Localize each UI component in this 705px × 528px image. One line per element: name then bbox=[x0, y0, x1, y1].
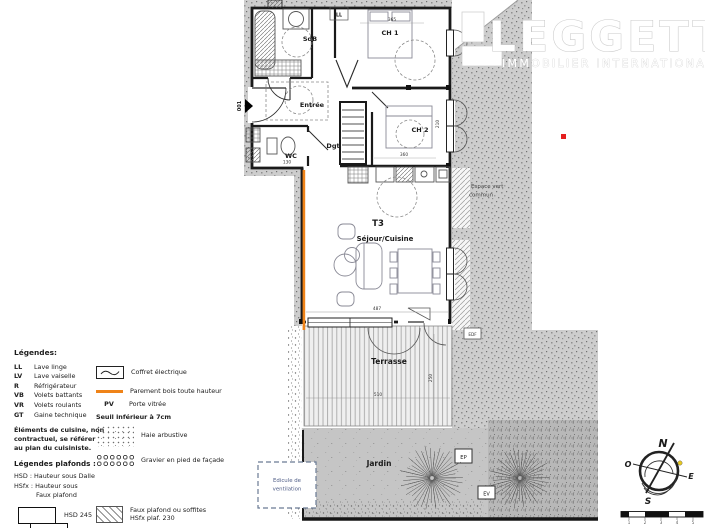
compass-e: E bbox=[688, 472, 694, 481]
bathroom-sink bbox=[283, 9, 309, 29]
label-t3: T3 bbox=[372, 219, 384, 229]
legend: Légendes: LLLave linge LVLave vaiselle R… bbox=[12, 348, 264, 524]
legend-pv: PV Porte vitrée bbox=[96, 400, 166, 410]
svg-text:Edicule de: Edicule de bbox=[273, 478, 302, 484]
espace-vert-line1: Espace vert bbox=[471, 184, 504, 190]
svg-text:4: 4 bbox=[676, 520, 679, 525]
dim-ch1: 365 bbox=[388, 17, 396, 23]
legend-coffret: Coffret électrique bbox=[96, 366, 187, 379]
compass: N O E S bbox=[625, 437, 695, 507]
gravier-symbol bbox=[96, 454, 134, 467]
logo-wordmark: LEGGETT bbox=[489, 12, 705, 61]
compass-n: N bbox=[658, 437, 667, 450]
label-dgt: Dgt bbox=[326, 142, 339, 150]
dim-ch2: 360 bbox=[400, 152, 408, 158]
label-ch2: CH 2 bbox=[412, 126, 429, 134]
windows bbox=[306, 30, 467, 354]
svg-text:EV: EV bbox=[483, 492, 490, 498]
legend-seuil: Seuil inférieur à 7cm bbox=[96, 413, 171, 423]
window-sill-hatch-1 bbox=[452, 168, 470, 228]
label-sdb: SdB bbox=[303, 35, 317, 43]
shaft-box-2 bbox=[246, 148, 260, 162]
dim-sejour: 487 bbox=[373, 306, 381, 312]
armchair-1 bbox=[338, 224, 355, 239]
compass-o: O bbox=[625, 460, 632, 469]
armchair-2 bbox=[337, 292, 354, 306]
dim-terrasse-d: 250 bbox=[428, 374, 434, 382]
hsd-box-label: HSD 245 bbox=[64, 511, 92, 521]
dim-wc: 130 bbox=[283, 160, 291, 166]
ep-box: EP bbox=[455, 449, 472, 463]
svg-text:5: 5 bbox=[692, 520, 695, 525]
dining-table bbox=[398, 249, 432, 293]
parement-symbol bbox=[96, 390, 123, 393]
label-wc: WC bbox=[285, 152, 297, 160]
compass-yellow-dot bbox=[678, 461, 682, 465]
legend-kitchen-note: Éléments de cuisine, non contractuel, se… bbox=[14, 426, 106, 452]
svg-text:1: 1 bbox=[628, 520, 631, 525]
walls bbox=[252, 0, 451, 324]
ceiling-zones bbox=[266, 27, 435, 217]
page: 487 510 250 130 360 365 210 SdB CH 1 Ent… bbox=[0, 0, 705, 528]
label-jardin: Jardin bbox=[366, 459, 392, 468]
coffee-table-2 bbox=[345, 248, 360, 263]
label-terrasse: Terrasse bbox=[371, 357, 407, 366]
svg-text:EDF: EDF bbox=[468, 332, 477, 337]
hsd-box-symbol bbox=[18, 507, 56, 524]
sofa bbox=[356, 243, 382, 289]
label-entree: Entrée bbox=[300, 101, 325, 109]
label-ll: LL bbox=[336, 13, 342, 19]
espace-vert-line2: commun bbox=[469, 193, 494, 199]
legend-title: Légendes: bbox=[14, 348, 264, 358]
edf-box: EDF bbox=[464, 328, 481, 339]
legend-gravier: Gravier en pied de façade bbox=[96, 454, 224, 467]
haie-symbol bbox=[96, 425, 134, 447]
hedge-bottom-row bbox=[302, 500, 484, 517]
svg-text:2: 2 bbox=[644, 520, 647, 525]
scale-bar: 1 2 3 4 5 bbox=[621, 512, 703, 526]
svg-text:3: 3 bbox=[660, 520, 663, 525]
washing-machine bbox=[255, 60, 301, 76]
legend-parement: Parement bois toute hauteur bbox=[96, 387, 222, 397]
pv-symbol: PV bbox=[96, 400, 122, 410]
logo-tagline: IMMOBILIER INTERNATIONAL bbox=[502, 57, 705, 70]
legend-hsfx-def2: Faux plafond bbox=[36, 491, 264, 501]
label-entry-number: 001 bbox=[237, 100, 243, 111]
coffret-symbol bbox=[96, 366, 124, 379]
legend-hsd-def: HSD : Hauteur sous Dalle bbox=[14, 472, 264, 482]
grass-texture bbox=[488, 420, 598, 519]
logo-l-block-1 bbox=[462, 12, 484, 42]
toilet-tank bbox=[267, 138, 277, 154]
shaft-box-1 bbox=[246, 128, 260, 142]
hsd-box-symbol-2 bbox=[30, 523, 68, 528]
legend-haie: Haie arbustive bbox=[96, 425, 187, 447]
dim-terrasse-w: 510 bbox=[374, 392, 382, 398]
ev-box: EV bbox=[478, 486, 495, 499]
label-sejour: Séjour/Cuisine bbox=[357, 235, 414, 243]
legend-faux-plafond: Faux plafond ou soffitesHSfx plaf. 230 bbox=[96, 506, 206, 523]
edicule-ventilation: Edicule de ventilation bbox=[258, 462, 316, 508]
compass-s: S bbox=[645, 497, 651, 507]
dim-ch2-depth: 210 bbox=[435, 120, 441, 128]
faux-plafond-symbol bbox=[96, 506, 123, 523]
legend-hsfx-def: HSfx : Hauteur sous bbox=[14, 482, 264, 492]
svg-text:EP: EP bbox=[460, 455, 466, 461]
logo: LEGGETT IMMOBILIER INTERNATIONAL bbox=[462, 12, 705, 70]
parement-bois-line bbox=[303, 170, 306, 330]
kitchen-fixtures bbox=[348, 167, 450, 183]
site-textures bbox=[288, 0, 598, 520]
red-marker bbox=[561, 134, 566, 139]
label-ch1: CH 1 bbox=[382, 29, 399, 37]
svg-text:ventilation: ventilation bbox=[273, 487, 302, 493]
